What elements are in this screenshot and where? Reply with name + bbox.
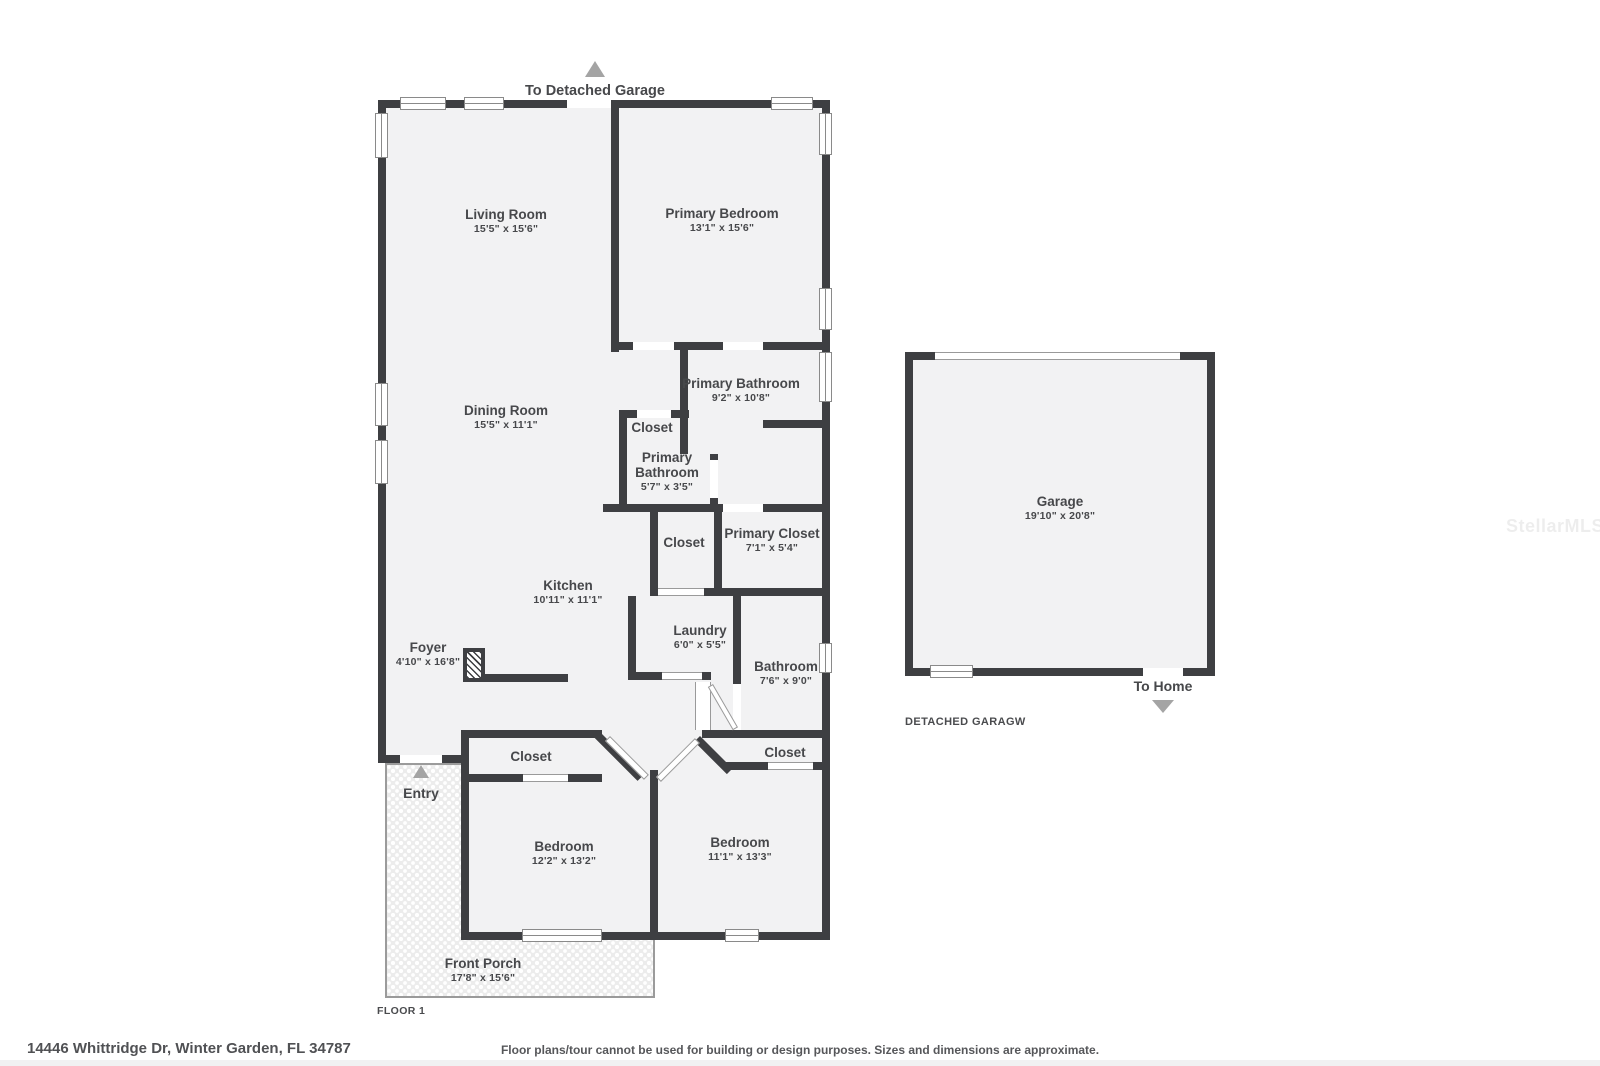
room-name: Primary Bathroom [682, 376, 800, 391]
room-name: Bathroom [754, 659, 818, 674]
bottom-band [0, 1060, 1600, 1066]
wall [1207, 352, 1215, 676]
wall [822, 100, 830, 940]
to-detached-garage-label: To Detached Garage [525, 83, 665, 99]
floor-plan-page: To Detached Garage Living Room 15'5" x 1… [0, 0, 1600, 1066]
door-opening [633, 342, 674, 350]
room-label-closet: Closet [663, 535, 704, 550]
room-dims: 4'10" x 16'8" [396, 655, 460, 669]
room-name: Foyer [396, 640, 460, 655]
door-opening [567, 100, 611, 108]
window [375, 113, 388, 158]
wall [628, 596, 636, 680]
window [819, 352, 832, 402]
door-opening [1143, 668, 1183, 676]
room-name: Laundry [673, 623, 726, 638]
room-name: Closet [631, 420, 672, 435]
door-opening [662, 672, 702, 680]
window [819, 643, 832, 673]
wall [628, 672, 662, 680]
room-label-living-room: Living Room 15'5" x 15'6" [465, 207, 547, 236]
window [819, 113, 832, 155]
column-hatch [463, 648, 485, 682]
room-dims: 19'10" x 20'8" [1025, 509, 1095, 523]
room-label-bedroom: Bedroom 11'1" x 13'3" [708, 835, 772, 864]
wall [763, 420, 830, 428]
wall [650, 770, 658, 940]
room-label-primary-bedroom: Primary Bedroom 13'1" x 15'6" [665, 206, 778, 235]
room-label-primary-bathroom-small: Primary Bathroom 5'7" x 3'5" [635, 450, 699, 494]
detached-garage-caption: DETACHED GARAGW [905, 716, 1026, 728]
wall [461, 932, 830, 940]
room-dims: 15'5" x 11'1" [464, 418, 548, 432]
room-label-closet: Closet [764, 745, 805, 760]
watermark: StellarMLS [1506, 516, 1600, 537]
door-opening [637, 410, 671, 418]
room-name: Kitchen [533, 578, 602, 593]
entry-door-opening [400, 755, 442, 763]
room-name: Primary [635, 450, 699, 465]
wall [461, 774, 523, 782]
door-opening [723, 342, 763, 350]
room-dims: 15'5" x 15'6" [465, 222, 547, 236]
room-name: Bedroom [532, 839, 596, 854]
room-name: Dining Room [464, 403, 548, 418]
door-opening [723, 504, 763, 512]
address-label: 14446 Whittridge Dr, Winter Garden, FL 3… [27, 1040, 351, 1057]
room-name: Garage [1025, 494, 1095, 509]
room-name: Primary Closet [724, 526, 819, 541]
room-dims: 17'8" x 15'6" [445, 971, 522, 985]
window [464, 97, 504, 110]
room-label-garage: Garage 19'10" x 20'8" [1025, 494, 1095, 523]
entry-label: Entry [403, 785, 439, 801]
room-dims: 10'11" x 11'1" [533, 593, 602, 607]
wall [702, 730, 830, 738]
wall [483, 674, 568, 682]
wall [702, 672, 711, 680]
room-dims: 11'1" x 13'3" [708, 850, 772, 864]
arrow-down-icon [1152, 700, 1174, 713]
floor-label: FLOOR 1 [377, 1005, 425, 1017]
room-dims: 5'7" x 3'5" [635, 480, 699, 494]
room-name: Bathroom [635, 465, 699, 480]
wall [568, 774, 602, 782]
room-label-front-porch: Front Porch 17'8" x 15'6" [445, 956, 522, 985]
room-name: Living Room [465, 207, 547, 222]
room-label-foyer: Foyer 4'10" x 16'8" [396, 640, 460, 669]
room-dims: 7'6" x 9'0" [754, 674, 818, 688]
window [930, 665, 973, 678]
closet-door-opening [523, 774, 568, 782]
room-label-bathroom: Bathroom 7'6" x 9'0" [754, 659, 818, 688]
wall [378, 100, 386, 763]
wall [386, 755, 400, 763]
arrow-up-icon [585, 61, 605, 77]
to-home-label: To Home [1134, 678, 1193, 694]
room-name: Front Porch [445, 956, 522, 971]
wall [905, 352, 913, 676]
disclaimer-text: Floor plans/tour cannot be used for buil… [501, 1043, 1099, 1057]
garage-door-opening [935, 352, 1180, 360]
window [725, 929, 759, 942]
wall [619, 410, 627, 512]
window [375, 440, 388, 484]
room-label-closet: Closet [631, 420, 672, 435]
room-name: Closet [510, 749, 551, 764]
room-dims: 9'2" x 10'8" [682, 391, 800, 405]
room-name: Closet [663, 535, 704, 550]
door-opening [658, 588, 704, 596]
wall [650, 512, 658, 596]
wall [611, 100, 619, 352]
window [522, 929, 602, 942]
room-label-primary-bathroom: Primary Bathroom 9'2" x 10'8" [682, 376, 800, 405]
door-opening [710, 460, 718, 498]
room-name: Closet [764, 745, 805, 760]
room-dims: 6'0" x 5'5" [673, 638, 726, 652]
room-dims: 13'1" x 15'6" [665, 221, 778, 235]
window [771, 97, 813, 110]
room-name: Bedroom [708, 835, 772, 850]
window [819, 288, 832, 330]
room-label-kitchen: Kitchen 10'11" x 11'1" [533, 578, 602, 607]
room-label-bedroom: Bedroom 12'2" x 13'2" [532, 839, 596, 868]
room-label-laundry: Laundry 6'0" x 5'5" [673, 623, 726, 652]
room-label-dining-room: Dining Room 15'5" x 11'1" [464, 403, 548, 432]
wall [442, 755, 461, 763]
room-label-primary-closet: Primary Closet 7'1" x 5'4" [724, 526, 819, 555]
room-label-closet: Closet [510, 749, 551, 764]
closet-door-opening [768, 762, 813, 770]
wall [714, 512, 722, 596]
room-name: Primary Bedroom [665, 206, 778, 221]
room-dims: 7'1" x 5'4" [724, 541, 819, 555]
window [375, 383, 388, 426]
arrow-up-icon [413, 765, 429, 778]
window [400, 97, 446, 110]
wall [461, 730, 469, 940]
room-dims: 12'2" x 13'2" [532, 854, 596, 868]
wall [733, 588, 741, 684]
wall [603, 504, 830, 512]
wall [461, 730, 602, 738]
